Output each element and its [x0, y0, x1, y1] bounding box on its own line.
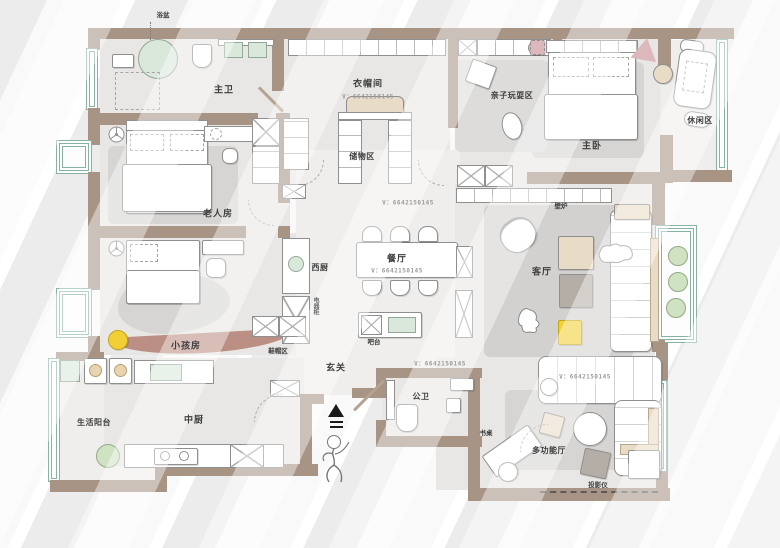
cloakroom-cabinet-row: [288, 39, 446, 56]
watermark: V：6642150145: [414, 359, 466, 368]
elder-blanket: [122, 164, 212, 212]
label-master-bath: 主卫: [214, 86, 234, 95]
label-service-balcony: 生活阳台: [77, 419, 111, 427]
play-area-cabinet-x: [458, 39, 477, 56]
label-bathtub: 浴盆: [157, 13, 170, 20]
kids-bench: [202, 240, 244, 255]
wall-elder-kids-stub: [278, 226, 290, 238]
label-storage-area: 储物区: [349, 153, 375, 161]
person-figure-icon: [314, 432, 362, 486]
master-nightstand: [530, 40, 545, 55]
entry-arrow-bar: [330, 421, 343, 423]
watermark: V：6642150145: [342, 92, 394, 101]
wall-top: [100, 28, 734, 39]
window-kids-room: [56, 288, 92, 338]
elder-corner-cabinet: [282, 184, 306, 199]
elder-wardrobe-x: [252, 118, 280, 146]
bar-island-cabinet: [361, 315, 382, 335]
shoe-cabinet-2: [279, 316, 306, 337]
massage-chair-seat: [682, 61, 708, 94]
label-leisure-area: 休闲区: [687, 117, 713, 125]
elder-pillow-1: [130, 134, 164, 151]
dining-chair: [418, 226, 438, 242]
shoe-cabinet-1: [252, 316, 279, 337]
elder-stool: [222, 148, 238, 164]
wall-leisure-bottom: [664, 170, 732, 182]
sofa-armrest-round: [540, 378, 558, 396]
label-play-area: 亲子玩耍区: [491, 92, 534, 100]
wall-multi-hall-bottom: [470, 488, 670, 501]
watermark: V：6642150145: [382, 198, 434, 207]
plant-icon: [666, 298, 686, 318]
dining-chair: [390, 226, 410, 242]
shower-area: [115, 72, 160, 110]
storage-wardrobe-top: [338, 112, 412, 120]
wall-master-bottom: [527, 172, 662, 184]
wall-guest-bath-top: [382, 368, 482, 378]
dining-chair: [362, 280, 382, 296]
label-desk: 书桌: [480, 431, 493, 438]
elder-pillow-2: [170, 134, 204, 151]
wall-guest-bath-bottom: [376, 436, 482, 447]
dining-chair: [390, 280, 410, 296]
washer-drum: [89, 364, 102, 377]
yellow-beanbag: [108, 330, 128, 350]
label-guest-bath: 公卫: [413, 393, 430, 401]
window-elder-room: [56, 140, 92, 174]
lounging-person-figure: [596, 240, 636, 264]
fridge: [230, 444, 264, 468]
kitchen-sink: [150, 364, 182, 381]
wall-kitchen-right: [300, 398, 312, 464]
plant-icon: [96, 444, 120, 468]
plant-icon: [668, 272, 688, 292]
entry-arrow-bar: [330, 426, 343, 428]
label-shoe-area: 鞋帽区: [268, 349, 288, 356]
wall-masterbath-right: [272, 39, 284, 91]
label-multi-hall: 多功能厅: [532, 447, 566, 455]
toilet-guest: [396, 404, 418, 432]
sofa-side-table: [650, 238, 659, 342]
wall-balcony-bottom: [50, 480, 166, 492]
label-cloakroom: 衣帽间: [353, 80, 383, 89]
label-chinese-kitchen: 中厨: [184, 416, 204, 425]
master-pillow-2: [593, 57, 629, 77]
label-west-kitchen: 西厨: [312, 264, 329, 272]
bathtub-leader-line: [150, 22, 151, 40]
wall-master-right-a: [658, 39, 671, 67]
ceiling-fan-icon: [108, 240, 125, 257]
label-living-room: 客厅: [532, 268, 552, 277]
burner-icon: [179, 451, 189, 461]
kids-blanket: [126, 270, 200, 304]
floor-plan: 浴盆 主卫 衣帽间 V：6642150145 储物区 亲子玩耍区 主卧 休闲区 …: [0, 0, 780, 548]
coffee-table-beige: [558, 236, 594, 270]
gray-ottoman: [579, 447, 611, 479]
bar-sink: [388, 317, 416, 333]
master-blanket: [544, 94, 638, 140]
coffee-table-gray: [559, 274, 593, 308]
wall-living-right-upper: [652, 183, 665, 225]
toilet-master: [192, 44, 212, 68]
kids-table: [206, 258, 226, 278]
guest-bath-washer: [446, 398, 461, 413]
plant-icon: [668, 246, 688, 266]
storage-wardrobe-right: [388, 120, 412, 184]
tv-fireplace-console: [456, 188, 612, 203]
balcony-sink: [60, 360, 80, 382]
kids-pillow: [130, 244, 158, 262]
dog-figure: [514, 304, 542, 334]
label-kids-room: 小孩房: [171, 342, 201, 351]
elder-wardrobe: [252, 146, 280, 184]
west-kitchen-sink: [288, 256, 304, 272]
wall-left-a: [88, 28, 100, 50]
dining-chair: [362, 226, 382, 242]
projector-screen-line: [540, 491, 658, 493]
window-balcony: [48, 358, 60, 482]
round-table: [573, 412, 607, 446]
dining-chair: [418, 280, 438, 296]
bedroom-pouf: [653, 64, 673, 84]
window-master-bath: [86, 48, 98, 110]
dining-sideboard: [456, 246, 473, 278]
label-bar-counter: 吧台: [368, 340, 381, 347]
sink-master-2: [248, 42, 267, 58]
wall-elder-kids: [100, 226, 246, 238]
yellow-stool: [558, 320, 582, 345]
watermark: V：6642150145: [371, 266, 423, 275]
dryer-drum: [114, 364, 127, 377]
ceiling-fan-icon: [108, 126, 125, 143]
guest-bath-vanity: [450, 378, 474, 391]
dresser-mirror: [210, 128, 222, 140]
hall-cabinet-x1: [457, 165, 485, 187]
label-fireplace: 壁炉: [555, 204, 568, 211]
window-leisure: [716, 39, 728, 171]
guest-bath-shelf: [386, 380, 395, 420]
watermark: V：6642150145: [559, 372, 611, 381]
label-elder-room: 老人房: [203, 210, 233, 219]
wall-left-c: [88, 172, 100, 290]
hall-cabinet-x2: [485, 165, 513, 187]
label-projector: 投影仪: [588, 483, 608, 490]
dining-tall-cabinet: [455, 290, 473, 338]
sofa-chaise: [614, 204, 650, 220]
living-sofa: [610, 210, 652, 352]
sink-master-1: [224, 42, 243, 58]
master-pillow-1: [553, 57, 589, 77]
label-dining-room: 餐厅: [387, 255, 407, 264]
burner-icon: [160, 451, 170, 461]
side-table-white: [628, 450, 660, 479]
label-foyer: 玄关: [326, 364, 346, 373]
label-appliance-cabinet: 电器柜: [312, 297, 318, 315]
bath-shelf: [112, 54, 134, 68]
label-master-bedroom: 主卧: [582, 142, 602, 151]
wall-cloakroom-right: [448, 28, 458, 128]
